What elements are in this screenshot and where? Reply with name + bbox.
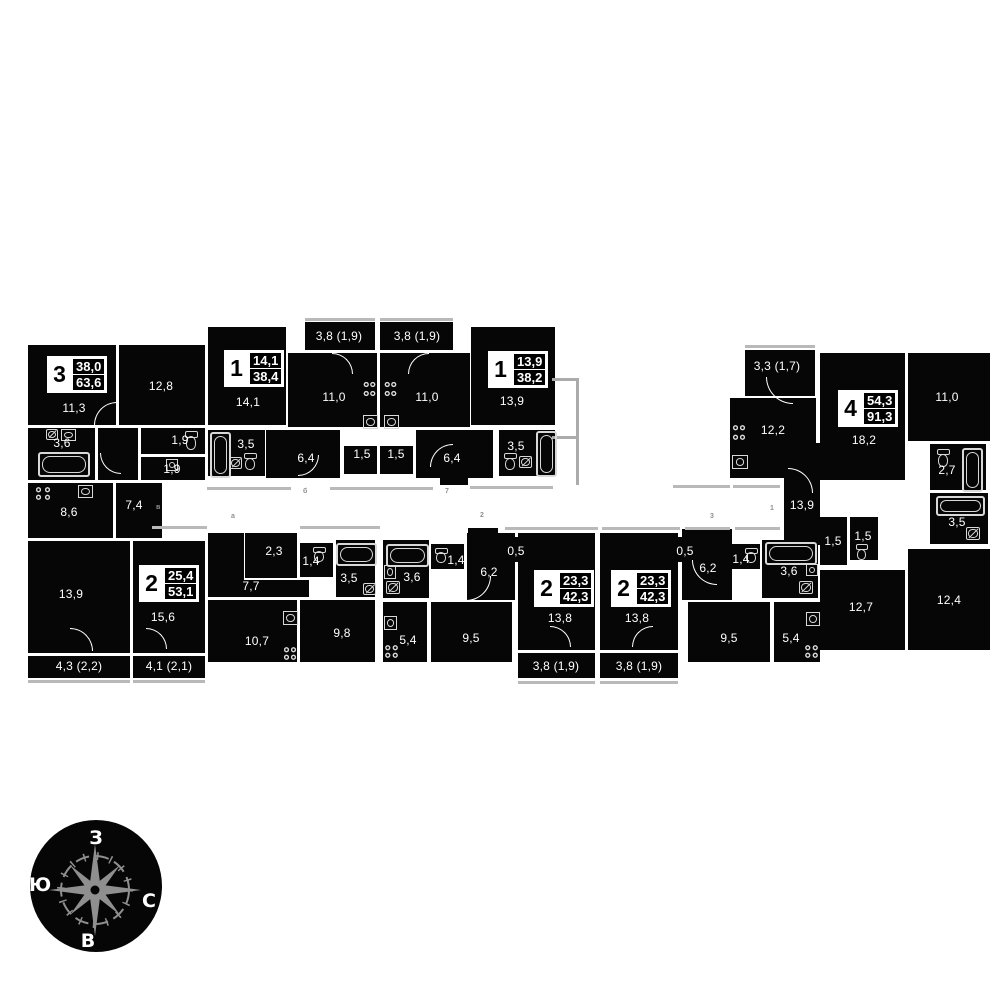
stove-icon (732, 423, 746, 442)
corridor-mark: 1 (770, 505, 774, 512)
shaft-line-h1 (552, 378, 579, 381)
living-area: 13,9 (514, 354, 545, 370)
corridor-mark: 3 (710, 513, 714, 520)
wall-line (152, 526, 207, 529)
area-label: 2,3 (265, 544, 282, 558)
wall-line (28, 680, 130, 683)
area-label: 12,4 (937, 593, 961, 607)
wall-line (600, 681, 678, 684)
corridor-mark: в (156, 504, 160, 511)
area-label: 1,4 (732, 552, 749, 566)
living-area: 14,1 (250, 353, 281, 369)
area-label: 0,5 (676, 544, 693, 558)
area-label: 3,8 (1,9) (316, 329, 363, 343)
stove-icon (384, 644, 399, 659)
area-label: 3,3 (1,7) (754, 359, 801, 373)
apartment-label-4: 4 54,391,3 (838, 390, 898, 427)
wall-line (518, 681, 595, 684)
area-label: 1,5 (824, 534, 841, 548)
compass-hub-hole (91, 886, 100, 895)
stove-icon (283, 646, 297, 661)
corridor-mark: а (231, 513, 235, 520)
living-area: 54,3 (864, 393, 895, 409)
area-label: 15,6 (151, 610, 175, 624)
corridor-mark: б (303, 488, 307, 495)
total-area: 53,1 (165, 584, 196, 599)
wall-line (207, 487, 291, 490)
area-label: 14,1 (236, 395, 260, 409)
area-label: 3,6 (403, 570, 420, 584)
area-label: 3,5 (340, 571, 357, 585)
rooms-count: 2 (536, 572, 557, 605)
area-label: 1,4 (302, 554, 319, 568)
sink-icon (283, 611, 298, 625)
door-threshold (468, 528, 498, 538)
wall-line (735, 527, 780, 530)
area-label: 3,8 (1,9) (533, 659, 580, 673)
area-label: 1,5 (854, 529, 871, 543)
bathtub-icon (38, 452, 90, 477)
bathtub-icon (765, 542, 817, 565)
area-label: 1,5 (353, 447, 370, 461)
area-label: 1,9 (163, 462, 180, 476)
wall-line (300, 526, 380, 529)
compass-letter-east: В (81, 930, 95, 952)
apartment-label-2b: 2 23,342,3 (534, 570, 594, 607)
total-area: 38,2 (514, 370, 545, 385)
area-label: 3,6 (780, 564, 797, 578)
compass-letter-north: С (142, 890, 156, 912)
wall-line (380, 318, 453, 321)
area-label: 12,2 (761, 423, 785, 437)
rooms-count: 1 (226, 352, 247, 385)
area-label: 4,3 (2,2) (56, 659, 103, 673)
area-label: 13,9 (59, 587, 83, 601)
bathtub-icon (336, 543, 377, 566)
washer-icon (966, 527, 980, 540)
toilet-icon (434, 548, 448, 562)
stove-icon (34, 486, 52, 501)
area-label: 12,8 (149, 379, 173, 393)
area-label: 9,5 (462, 631, 479, 645)
wall-line (745, 345, 815, 348)
compass-rose: З Ю С В (30, 818, 164, 954)
area-label: 1,9 (171, 433, 188, 447)
apartment-label-1a: 1 14,138,4 (224, 350, 284, 387)
area-label: 9,8 (333, 626, 350, 640)
total-area: 63,6 (73, 375, 104, 390)
area-label: 11,3 (62, 401, 85, 415)
area-label: 3,5 (237, 437, 254, 451)
living-area: 25,4 (165, 568, 196, 584)
washer-icon (799, 581, 813, 594)
total-area: 42,3 (637, 589, 668, 604)
apartment-label-2c: 2 23,342,3 (611, 570, 671, 607)
area-label: 1,4 (447, 553, 464, 567)
washer-icon (386, 581, 400, 594)
stove-icon (804, 644, 819, 659)
area-label: 3,5 (507, 439, 524, 453)
rooms-count: 1 (490, 353, 511, 386)
area-label: 3,8 (1,9) (394, 329, 441, 343)
area-label: 10,7 (245, 634, 269, 648)
corridor-mark: 2 (480, 512, 484, 519)
hall-13-9d (784, 443, 820, 545)
toilet-icon (855, 544, 868, 559)
total-area: 91,3 (864, 409, 895, 424)
sink-icon (384, 415, 399, 429)
wall-line (673, 485, 730, 488)
dashed-partition (429, 602, 431, 662)
rooms-count: 3 (49, 358, 70, 391)
shaft-line-v (576, 378, 579, 485)
washer-icon (519, 456, 532, 468)
bathtub-icon (536, 431, 557, 477)
rooms-count: 2 (141, 567, 162, 600)
hall-7-7a (208, 533, 244, 597)
area-label: 4,1 (2,1) (146, 659, 193, 673)
area-label: 6,4 (297, 451, 314, 465)
washer-icon (229, 457, 242, 469)
bathtub-icon (210, 432, 231, 478)
apartment-label-1b: 1 13,938,2 (488, 351, 548, 388)
sink-icon (78, 485, 93, 498)
area-label: 3,5 (948, 515, 965, 529)
wall-line (330, 487, 433, 490)
area-label: 7,7 (242, 579, 259, 593)
sink-icon (384, 616, 397, 630)
area-label: 9,5 (720, 631, 737, 645)
wall-line (505, 527, 598, 530)
area-label: 18,2 (852, 433, 876, 447)
area-label: 13,8 (548, 611, 572, 625)
area-label: 5,4 (782, 631, 799, 645)
dashed-partition (772, 602, 774, 662)
area-label: 7,4 (125, 498, 142, 512)
wall-line (602, 527, 680, 530)
door-threshold (440, 478, 468, 485)
bathtub-icon (936, 496, 985, 516)
area-label: 6,4 (443, 451, 460, 465)
corridor-mark: 7 (445, 488, 449, 495)
washer-icon (363, 583, 376, 595)
apartment-label-3: 3 38,063,6 (47, 356, 107, 393)
apartment-label-2a: 2 25,453,1 (139, 565, 199, 602)
compass-letter-south: Ю (30, 874, 51, 896)
area-label: 11,0 (935, 390, 958, 404)
stove-icon (384, 380, 397, 398)
area-label: 2,7 (938, 463, 955, 477)
area-label: 1,5 (387, 447, 404, 461)
area-label: 12,7 (849, 600, 873, 614)
sink-icon (363, 415, 378, 429)
area-label: 11,0 (415, 390, 438, 404)
rooms-count: 4 (840, 392, 861, 425)
compass-letter-west: З (89, 827, 103, 849)
area-label: 3,8 (1,9) (616, 659, 663, 673)
living-area: 38,0 (73, 359, 104, 375)
sink-icon (806, 564, 818, 576)
floor-plan: 3 38,063,6 2 25,453,1 1 14,138,4 1 13,93… (0, 0, 1000, 1000)
area-label: 0,5 (507, 544, 524, 558)
wall-line (733, 485, 780, 488)
area-label: 8,6 (60, 505, 77, 519)
wall-line (305, 318, 375, 321)
sink-icon (732, 455, 748, 469)
living-area: 23,3 (560, 573, 591, 589)
area-label: 6,2 (480, 565, 497, 579)
rooms-count: 2 (613, 572, 634, 605)
total-area: 42,3 (560, 589, 591, 604)
area-label: 13,9 (500, 394, 524, 408)
area-label: 5,4 (399, 633, 416, 647)
wall-line (470, 486, 553, 489)
area-label: 13,9 (790, 498, 814, 512)
wall-line (685, 527, 730, 530)
wall-line (133, 680, 205, 683)
bathtub-icon (962, 448, 983, 492)
area-label: 13,8 (625, 611, 649, 625)
area-label: 6,2 (699, 561, 716, 575)
total-area: 38,4 (250, 369, 281, 384)
area-label: 11,0 (322, 390, 345, 404)
area-label: 3,6 (53, 436, 70, 450)
living-area: 23,3 (637, 573, 668, 589)
stove-icon (363, 380, 376, 398)
sink-icon (806, 612, 820, 626)
toilet-icon (503, 453, 517, 469)
bathtub-icon (386, 544, 429, 567)
toilet-icon (243, 453, 257, 469)
sink-icon (384, 565, 396, 579)
